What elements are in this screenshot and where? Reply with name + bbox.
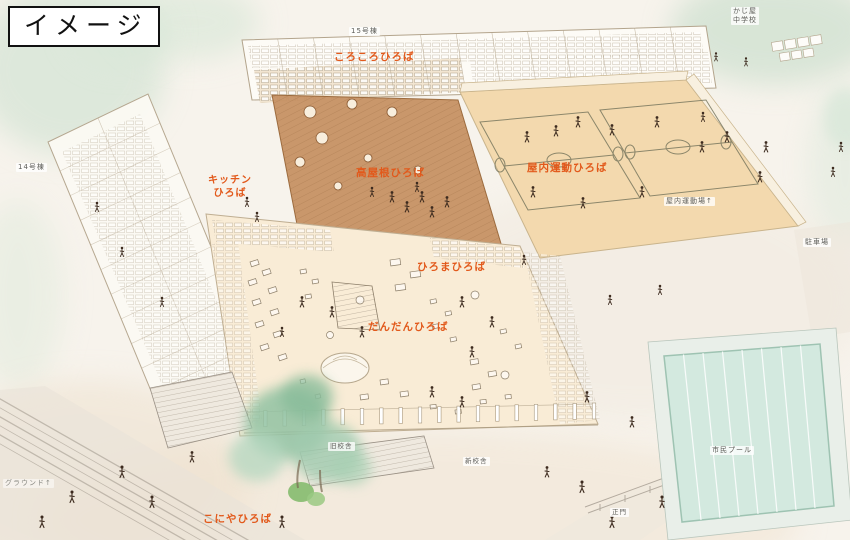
label-takayane-hiroba: 高屋根ひろば — [356, 165, 425, 180]
label-korokoro-hiroba: ころころひろば — [334, 49, 415, 64]
label-main-gate: 正門 — [610, 508, 629, 517]
label-kitchen-line2: ひろば — [214, 188, 247, 199]
label-old-school-building: 旧校舎 — [328, 442, 355, 451]
label-building-15: 15号棟 — [349, 27, 380, 36]
label-ground: グラウンド↑ — [3, 479, 54, 488]
label-dandan-hiroba: だんだんひろば — [368, 319, 449, 334]
label-kitchen-hiroba: キッチン ひろば — [208, 175, 252, 200]
illustration-canvas: イメージ 15号棟 かじ屋 中学校 14号棟 屋内運動場↑ 駐車場 市民プール … — [0, 0, 850, 540]
label-parking: 駐車場 — [803, 238, 831, 247]
label-kitchen-line1: キッチン — [208, 175, 252, 186]
label-neighbor-school-line1: かじ屋 — [733, 7, 757, 15]
label-koniya-hiroba: こにやひろば — [203, 511, 272, 526]
dome-tent — [321, 353, 369, 383]
label-neighbor-school-line2: 中学校 — [733, 16, 757, 24]
label-new-school-building: 新校舎 — [463, 457, 490, 466]
label-indoor-gym: 屋内運動場↑ — [664, 197, 715, 206]
label-hiroma-hiroba: ひろまひろば — [417, 259, 486, 274]
page-title: イメージ — [8, 6, 160, 47]
citizen-pool-shape — [648, 328, 850, 540]
label-neighbor-school: かじ屋 中学校 — [731, 7, 759, 25]
label-indoor-sports-hiroba: 屋内運動ひろば — [527, 160, 608, 175]
label-building-14: 14号棟 — [16, 163, 47, 172]
label-citizen-pool: 市民プール — [710, 446, 754, 455]
